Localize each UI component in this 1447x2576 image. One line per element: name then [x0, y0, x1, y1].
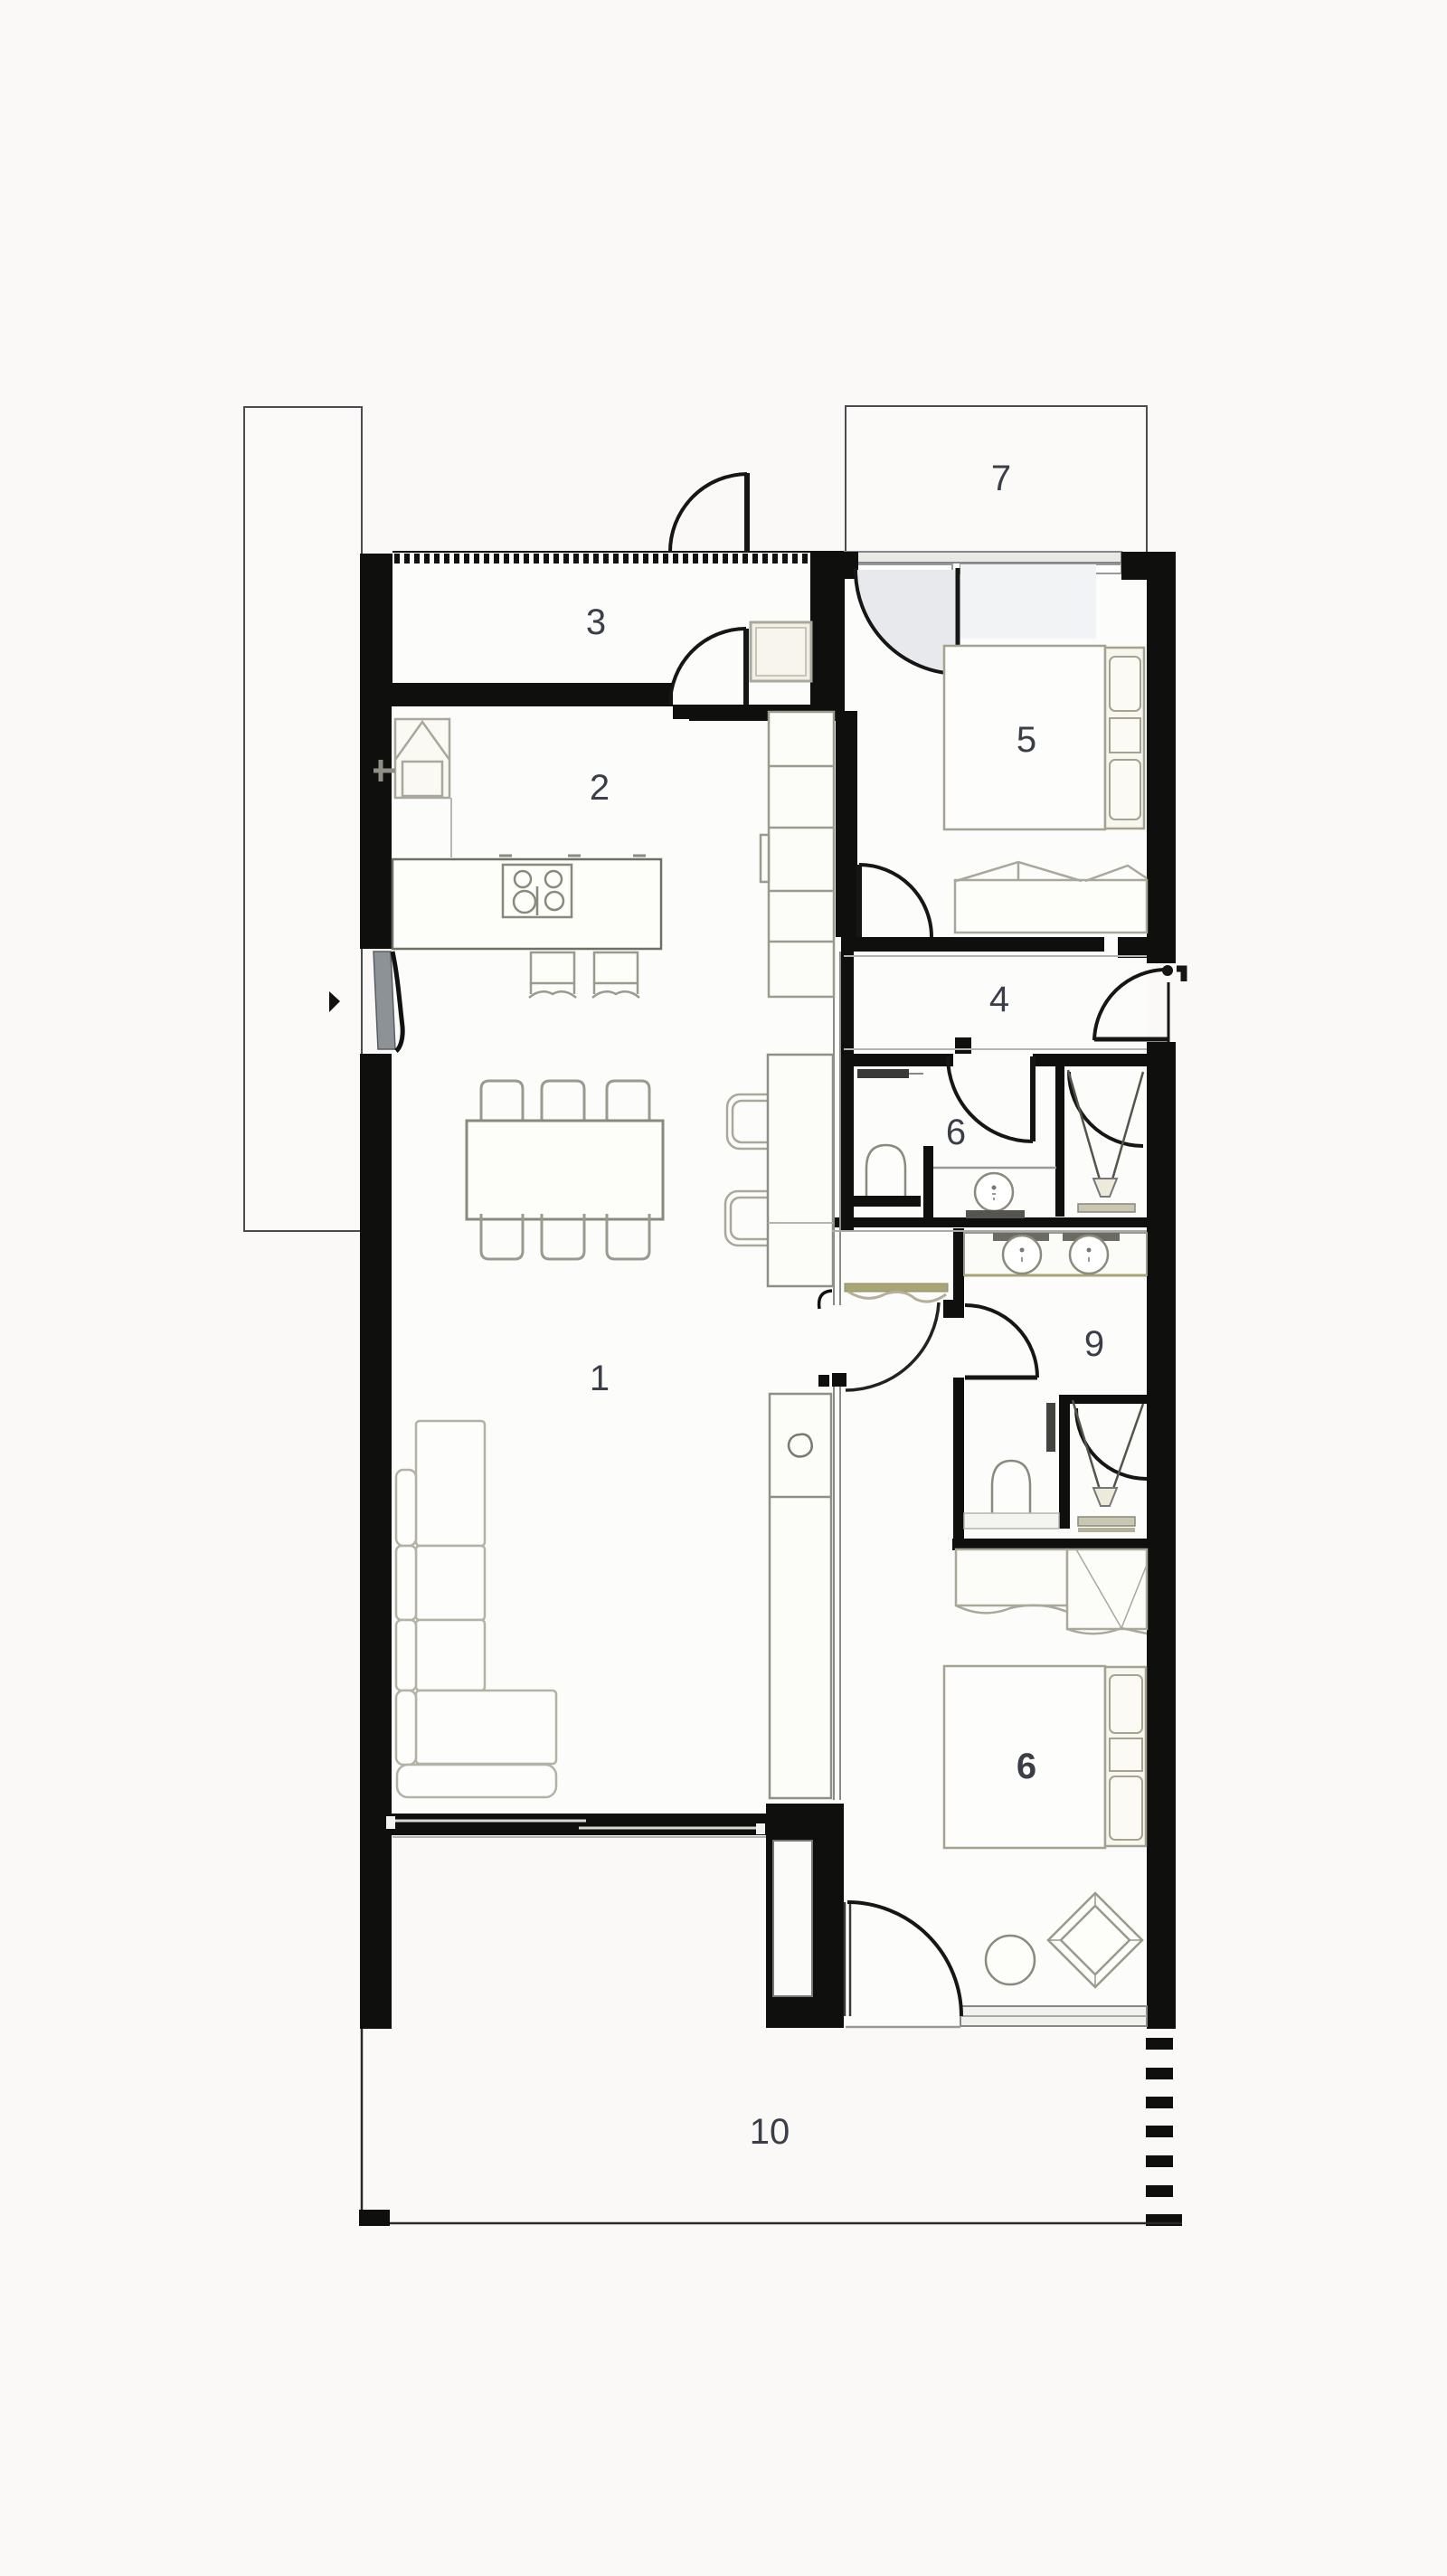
svg-text:1: 1: [590, 1359, 610, 1398]
svg-text:6: 6: [946, 1113, 966, 1152]
svg-text:7: 7: [991, 459, 1011, 498]
svg-text:10: 10: [750, 2112, 790, 2152]
svg-text:3: 3: [586, 602, 606, 642]
svg-text:4: 4: [989, 980, 1009, 1019]
svg-text:5: 5: [1017, 720, 1036, 760]
svg-text:6: 6: [1017, 1747, 1036, 1786]
svg-text:2: 2: [590, 768, 610, 808]
svg-text:9: 9: [1084, 1324, 1104, 1364]
